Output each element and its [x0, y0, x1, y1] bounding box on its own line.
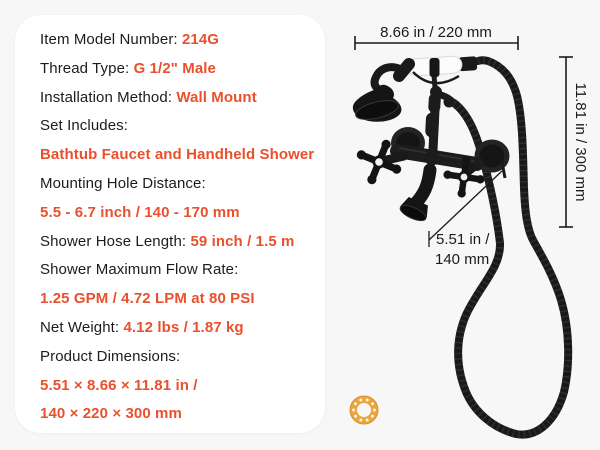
spec-card: Item Model Number: 214G Thread Type: G 1…	[15, 15, 325, 433]
spec-line: Thread Type: G 1/2" Male	[40, 55, 321, 84]
faucet-illustration: 8.66 in / 220 mm 11.81 in / 300 mm 5.51	[330, 0, 600, 450]
spec-value: 5.5 - 6.7 inch / 140 - 170 mm	[40, 204, 240, 221]
spout-reach-label-line1: 5.51 in /	[436, 231, 490, 248]
spec-value: 4.12 lbs / 1.87 kg	[123, 319, 243, 336]
spec-value: 140 × 220 × 300 mm	[40, 405, 182, 422]
spec-value: 59 inch / 1.5 m	[190, 233, 294, 250]
spec-label: Product Dimensions:	[40, 348, 180, 365]
spec-line: 140 × 220 × 300 mm	[40, 400, 321, 429]
gasket-ring-icon	[350, 396, 378, 424]
spec-line: Installation Method: Wall Mount	[40, 84, 321, 113]
spec-line: Shower Maximum Flow Rate:	[40, 256, 321, 285]
spec-line: Set Includes:	[40, 112, 321, 141]
product-spec-infographic: Item Model Number: 214G Thread Type: G 1…	[0, 0, 600, 450]
height-dimension: 11.81 in / 300 mm	[559, 57, 589, 227]
spec-value: G 1/2" Male	[134, 60, 216, 77]
spec-line: 5.51 × 8.66 × 11.81 in /	[40, 372, 321, 401]
spec-label: Installation Method:	[40, 89, 176, 106]
spec-value: 5.51 × 8.66 × 11.81 in /	[40, 377, 198, 394]
spec-line: 1.25 GPM / 4.72 LPM at 80 PSI	[40, 285, 321, 314]
width-dimension: 8.66 in / 220 mm	[355, 24, 518, 50]
width-dimension-label: 8.66 in / 220 mm	[380, 24, 492, 41]
spec-line: Product Dimensions:	[40, 343, 321, 372]
spec-value: 1.25 GPM / 4.72 LPM at 80 PSI	[40, 290, 255, 307]
spec-label: Shower Hose Length:	[40, 233, 190, 250]
spec-line: Shower Hose Length: 59 inch / 1.5 m	[40, 228, 321, 257]
spec-line: Mounting Hole Distance:	[40, 170, 321, 199]
spec-line: Bathtub Faucet and Handheld Shower	[40, 141, 321, 170]
spec-line: 5.5 - 6.7 inch / 140 - 170 mm	[40, 199, 321, 228]
spout-reach-label-line2: 140 mm	[435, 251, 489, 268]
spec-line: Item Model Number: 214G	[40, 26, 321, 55]
product-dimension-diagram: 8.66 in / 220 mm 11.81 in / 300 mm 5.51	[330, 0, 600, 450]
hand-shower-wand	[399, 55, 477, 83]
spec-label: Shower Maximum Flow Rate:	[40, 261, 238, 278]
spec-label: Net Weight:	[40, 319, 123, 336]
spec-label: Thread Type:	[40, 60, 134, 77]
spec-value: Wall Mount	[176, 89, 256, 106]
spec-label: Item Model Number:	[40, 31, 182, 48]
tub-spout	[398, 170, 432, 224]
spec-label: Mounting Hole Distance:	[40, 175, 206, 192]
height-dimension-label: 11.81 in / 300 mm	[572, 83, 589, 202]
spec-label: Set Includes:	[40, 117, 128, 134]
spec-line: Net Weight: 4.12 lbs / 1.87 kg	[40, 314, 321, 343]
spec-value: 214G	[182, 31, 219, 48]
spec-value: Bathtub Faucet and Handheld Shower	[40, 146, 314, 163]
